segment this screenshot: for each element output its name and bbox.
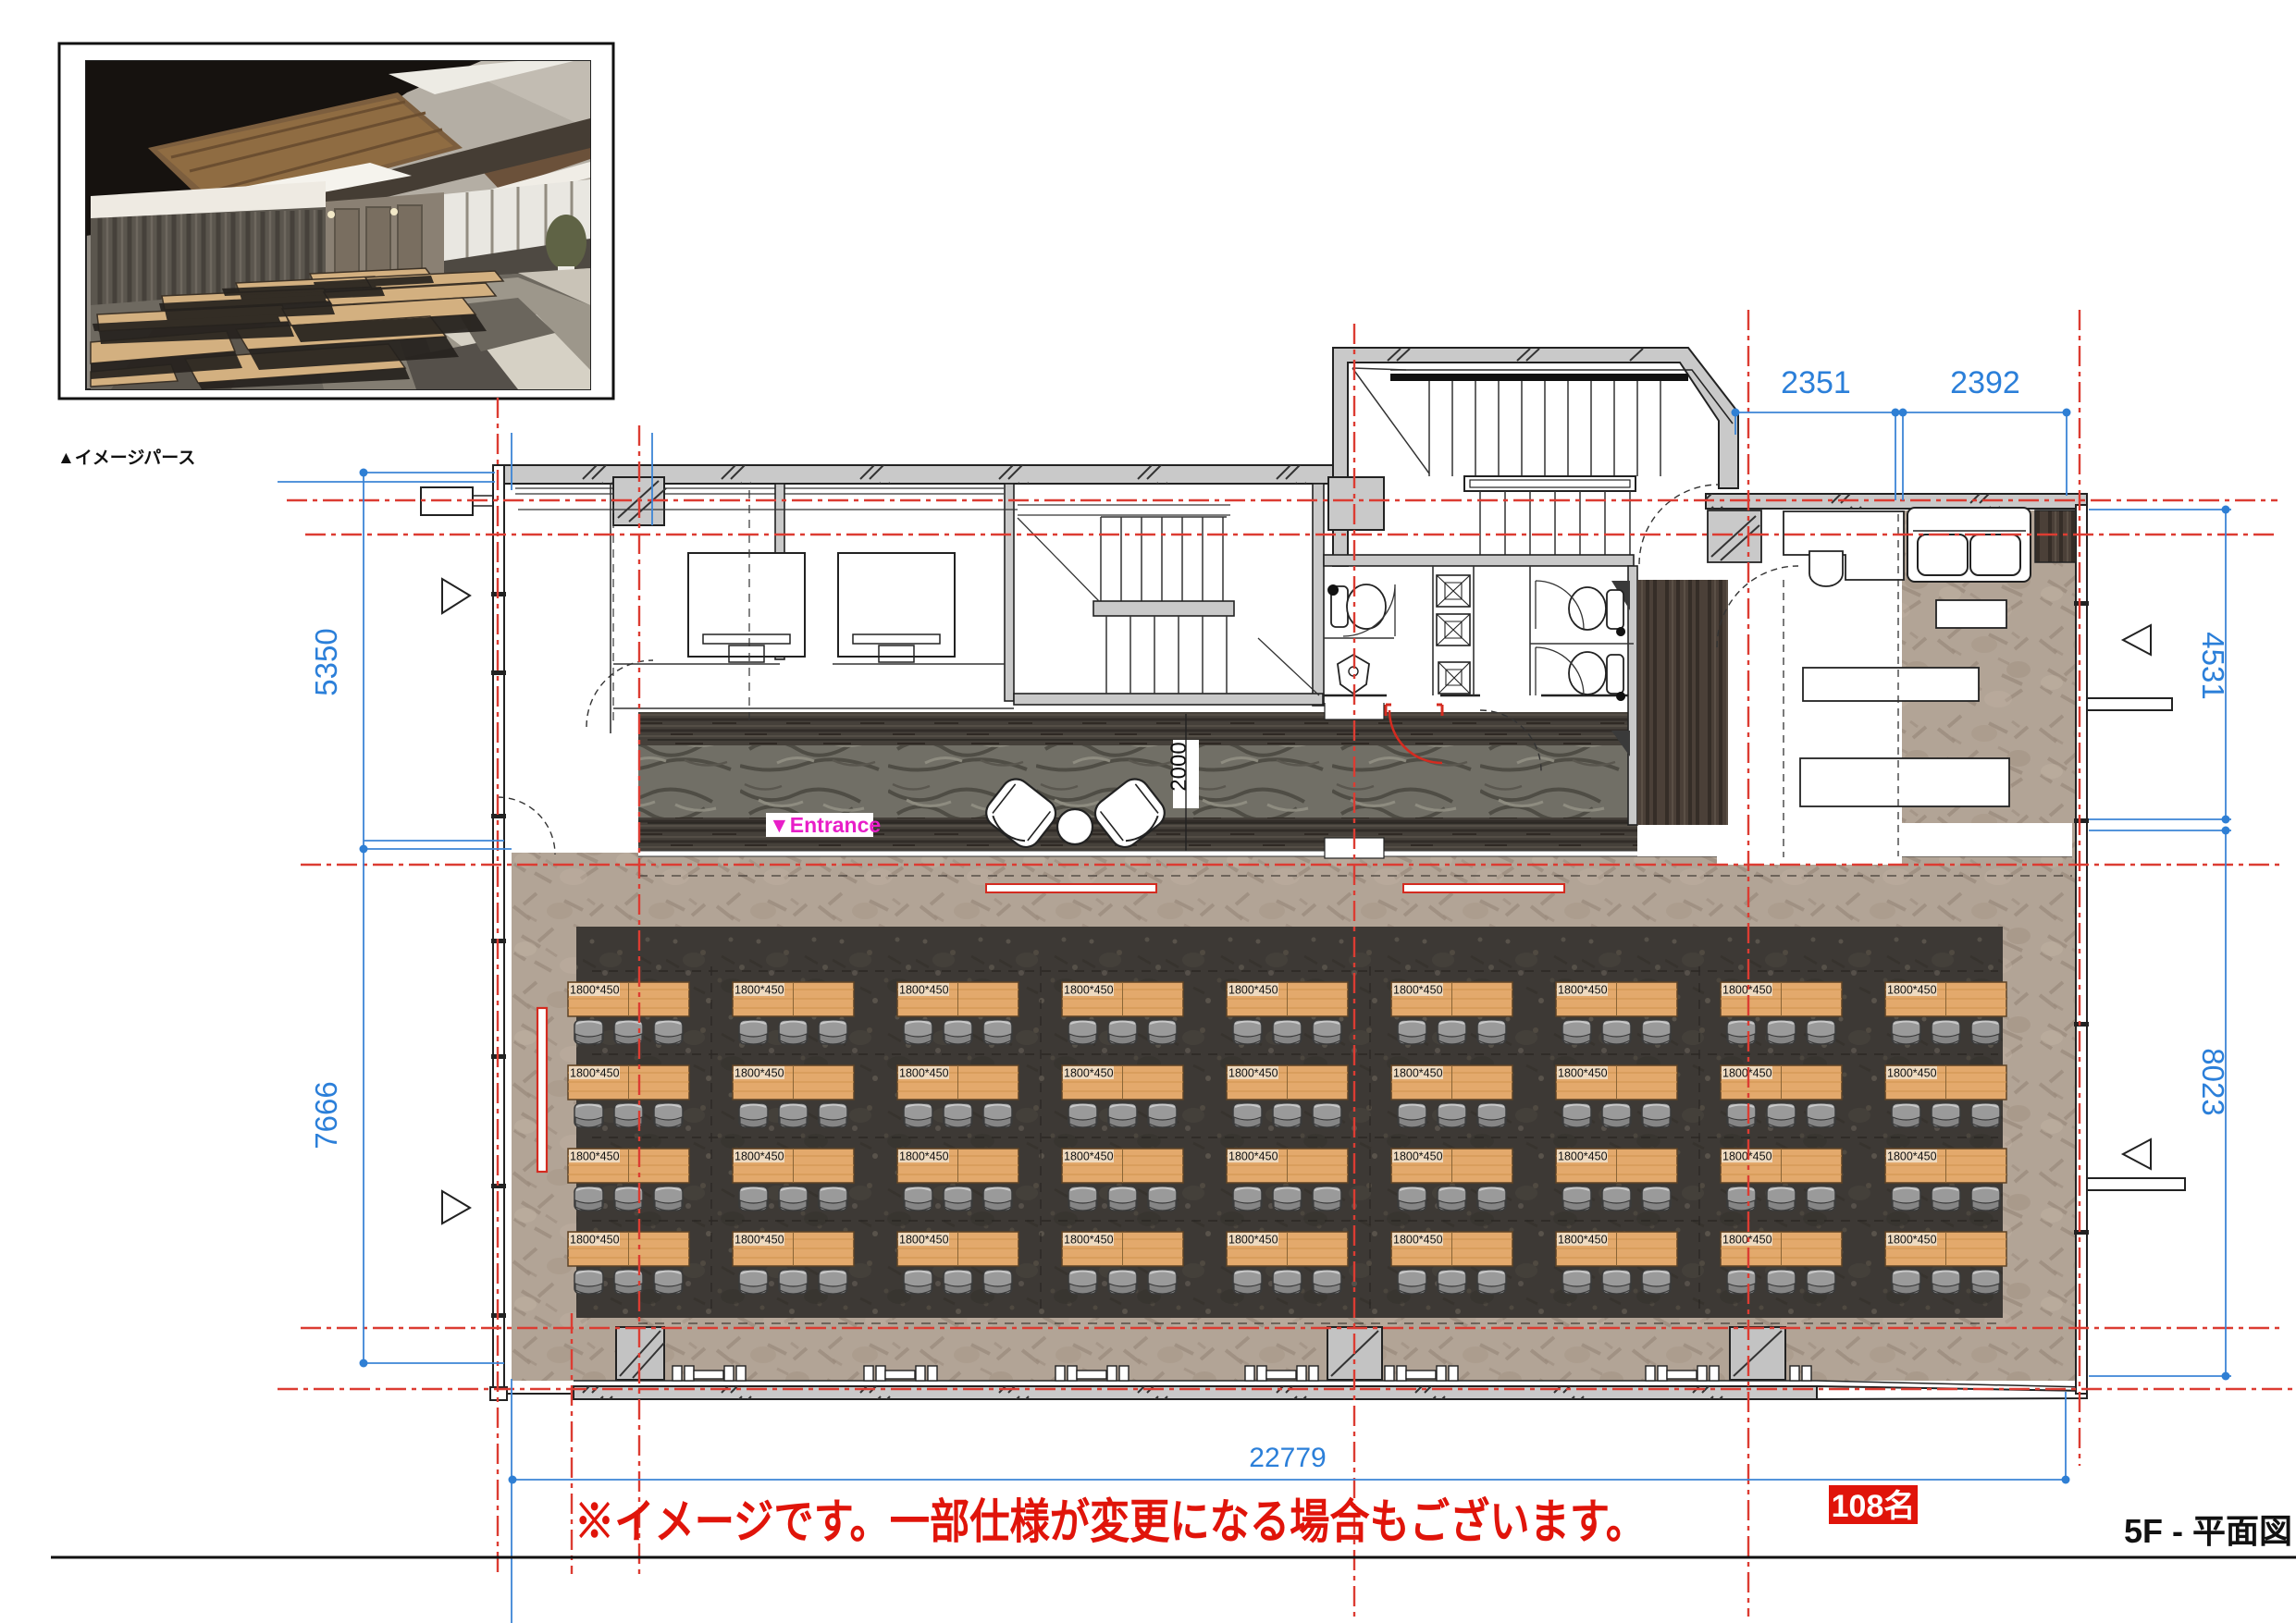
svg-text:108名: 108名 — [1832, 1489, 1916, 1524]
svg-text:5F - 平面図: 5F - 平面図 — [2124, 1512, 2292, 1550]
svg-text:5350: 5350 — [309, 628, 343, 695]
svg-text:2351: 2351 — [1781, 365, 1851, 400]
svg-text:▲イメージパース: ▲イメージパース — [57, 448, 195, 468]
svg-text:7666: 7666 — [309, 1081, 343, 1149]
svg-text:2392: 2392 — [1950, 365, 2020, 400]
svg-text:2000: 2000 — [1167, 742, 1191, 791]
svg-text:4531: 4531 — [2196, 632, 2230, 699]
svg-text:▼Entrance: ▼Entrance — [769, 813, 881, 837]
svg-text:22779: 22779 — [1249, 1443, 1326, 1473]
svg-text:※イメージです。一部仕様が変更になる場合もございます。: ※イメージです。一部仕様が変更になる場合もございます。 — [574, 1495, 1646, 1548]
svg-text:8023: 8023 — [2196, 1048, 2230, 1115]
